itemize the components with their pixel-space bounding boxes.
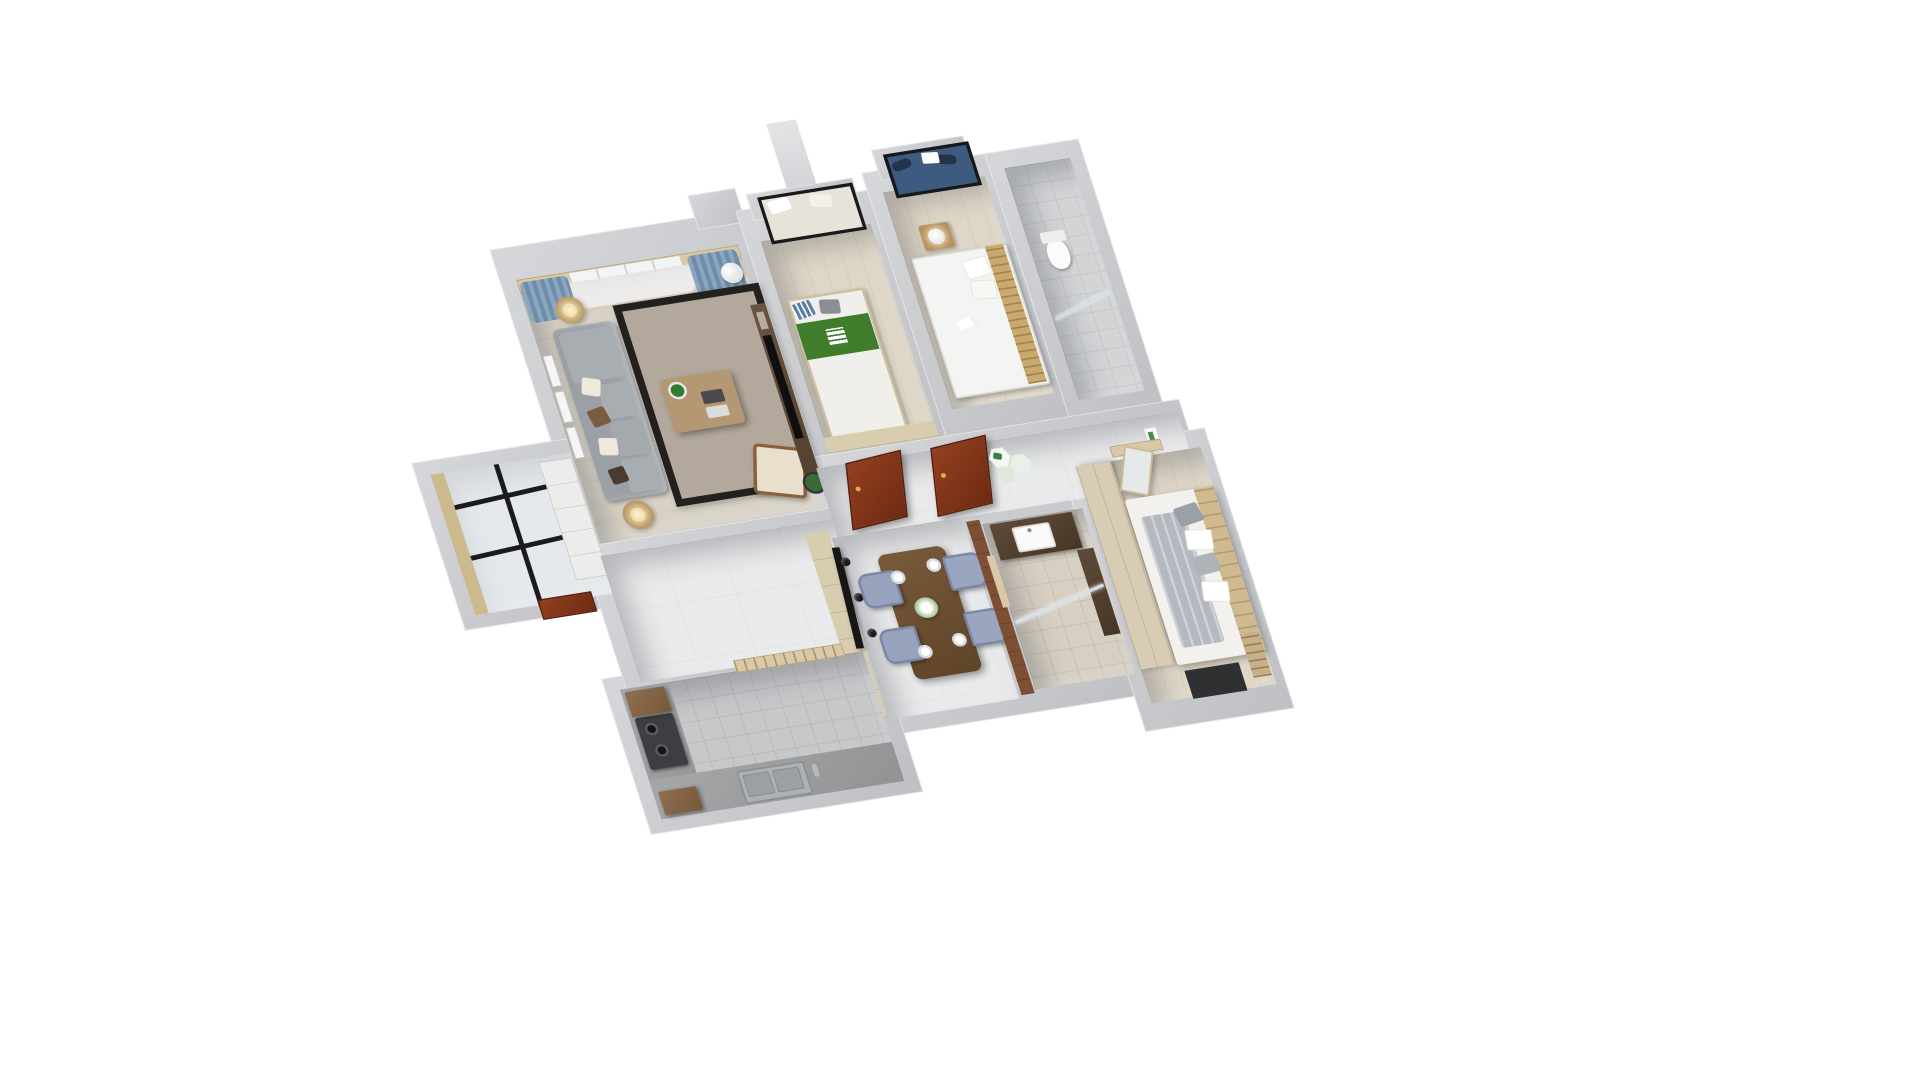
sofa-pillow-cream-2 (598, 438, 619, 456)
bedroom3-pillow-2 (969, 279, 998, 299)
apartment-plan (350, 150, 1311, 865)
bay2-pillow-2 (809, 194, 833, 207)
bedroom2-gray-pillow (818, 299, 841, 314)
master-pillow-white-2 (1201, 581, 1231, 602)
bay3-pillow-white (921, 152, 940, 164)
wall-bump-north (687, 188, 746, 230)
hall-door-bedroom2 (845, 450, 908, 531)
floorplan-scene (350, 150, 1311, 865)
hex-leaf-print (993, 452, 1002, 460)
master-pillow-white-1 (1184, 529, 1215, 550)
frosted-door-ajar (1120, 446, 1153, 497)
sofa-pillow-cream-1 (581, 377, 600, 397)
hall-door-bedroom3 (930, 434, 993, 517)
